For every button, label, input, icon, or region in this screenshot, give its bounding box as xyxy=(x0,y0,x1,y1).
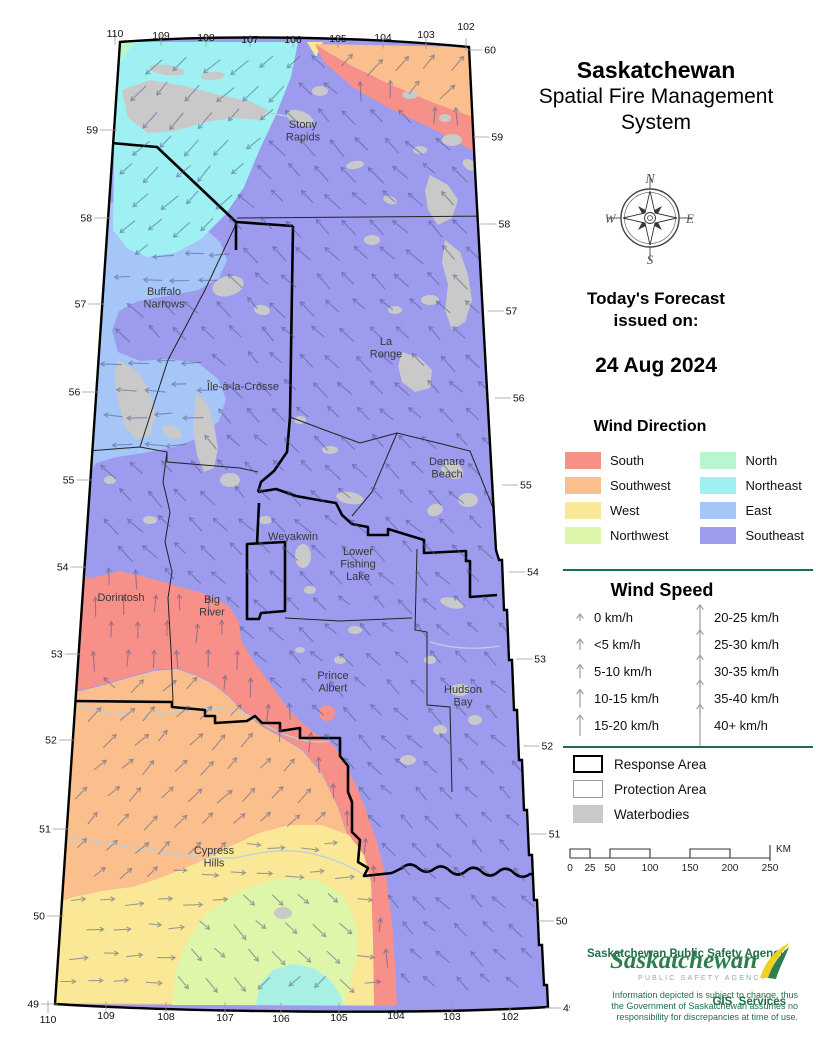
longitude-label: 108 xyxy=(157,1011,175,1023)
logo-subtext: PUBLIC SAFETY AGENCY xyxy=(638,975,767,982)
longitude-label: 103 xyxy=(417,29,435,41)
wind-speed-legend: 0 km/h20-25 km/h<5 km/h25-30 km/h5-10 km… xyxy=(572,604,810,739)
longitude-label: 105 xyxy=(330,1012,348,1024)
longitude-label: 109 xyxy=(97,1010,115,1022)
wind-speed-label: 15-20 km/h xyxy=(594,718,659,733)
longitude-label: 103 xyxy=(443,1011,461,1023)
wind-direction-entry: Northwest xyxy=(565,527,700,544)
wind-direction-label: Northwest xyxy=(610,528,669,543)
wind-speed-row: <5 km/h25-30 km/h xyxy=(572,631,810,658)
map-place-label: PrinceAlbert xyxy=(317,670,348,695)
wind-direction-row: SouthNorth xyxy=(565,452,810,469)
wind-direction-label: Southwest xyxy=(610,478,671,493)
wind-direction-label: South xyxy=(610,453,644,468)
scale-bar-tick-label: 0 xyxy=(567,863,573,874)
wind-speed-heading: Wind Speed xyxy=(552,580,772,601)
wind-speed-label: 40+ km/h xyxy=(714,718,768,733)
compass-e-label: E xyxy=(685,211,694,226)
wind-speed-label: 35-40 km/h xyxy=(714,691,779,706)
wind-direction-entry: Southeast xyxy=(700,527,810,544)
latitude-label: 53 xyxy=(51,649,63,661)
wind-speed-arrow-icon xyxy=(572,685,588,712)
latitude-label: 57 xyxy=(75,299,87,311)
map-place-label: StonyRapids xyxy=(286,119,321,144)
southeast-color-swatch xyxy=(700,527,736,544)
latitude-label: 56 xyxy=(513,393,525,405)
map-place-label: DenareBeach xyxy=(429,456,465,481)
latitude-label: 54 xyxy=(527,567,539,579)
logo-wordmark: Saskatchewan xyxy=(610,947,757,974)
northwest-color-swatch xyxy=(565,527,601,544)
latitude-label: 52 xyxy=(541,741,553,753)
wind-speed-arrow-icon xyxy=(572,604,588,631)
protection-area-label: Protection Area xyxy=(614,782,706,797)
wind-speed-row: 5-10 km/h30-35 km/h xyxy=(572,658,810,685)
wind-speed-row: 15-20 km/h40+ km/h xyxy=(572,712,810,739)
forecast-heading-line1: Today's Forecast xyxy=(536,288,776,310)
compass-w-label: W xyxy=(605,211,617,226)
latitude-label: 49 xyxy=(27,999,39,1011)
scale-bar-tick-label: 25 xyxy=(584,863,596,874)
wind-speed-arrow-icon xyxy=(692,604,708,631)
longitude-label: 106 xyxy=(272,1013,290,1025)
wind-speed-arrow-icon xyxy=(572,658,588,685)
latitude-label: 57 xyxy=(506,306,518,318)
wind-speed-label: <5 km/h xyxy=(594,637,641,652)
latitude-label: 58 xyxy=(499,219,511,231)
wind-speed-entry: 0 km/h xyxy=(572,604,692,631)
wind-direction-label: Northeast xyxy=(745,478,801,493)
wind-direction-label: West xyxy=(610,503,639,518)
latitude-label: 53 xyxy=(534,654,546,666)
scale-bar-tick-label: 200 xyxy=(722,863,739,874)
scale-bar-tick-label: 50 xyxy=(604,863,616,874)
compass-s-label: S xyxy=(647,252,654,266)
wind-speed-label: 20-25 km/h xyxy=(714,610,779,625)
scale-bar: 02550100150200250KM xyxy=(563,840,803,874)
north-color-swatch xyxy=(700,452,736,469)
wind-speed-label: 0 km/h xyxy=(594,610,633,625)
latitude-label: 55 xyxy=(520,480,532,492)
wind-direction-heading: Wind Direction xyxy=(540,418,760,436)
compass-n-label: N xyxy=(644,172,655,187)
map-place-label: Île-à-la-Crosse xyxy=(206,380,279,393)
response-area-label: Response Area xyxy=(614,757,706,772)
longitude-label: 109 xyxy=(152,30,170,42)
wind-direction-row: NorthwestSoutheast xyxy=(565,527,810,544)
longitude-label: 106 xyxy=(284,34,302,46)
area-legend: Response Area Protection Area Waterbodie… xyxy=(573,755,706,830)
longitude-label: 105 xyxy=(329,33,347,45)
disclaimer-line2: the Government of Saskatchewan assumes n… xyxy=(556,1001,798,1012)
wind-speed-entry: 25-30 km/h xyxy=(692,631,810,658)
wind-speed-entry: 15-20 km/h xyxy=(572,712,692,739)
disclaimer-line3: responsibility for discrepancies at time… xyxy=(556,1012,798,1023)
response-area-swatch xyxy=(573,755,603,773)
wind-direction-row: SouthwestNortheast xyxy=(565,477,810,494)
wind-direction-label: North xyxy=(745,453,777,468)
southwest-color-swatch xyxy=(565,477,601,494)
east-color-swatch xyxy=(700,502,736,519)
wind-direction-entry: North xyxy=(700,452,810,469)
longitude-label: 107 xyxy=(241,34,259,46)
scale-bar-tick-label: 250 xyxy=(762,863,779,874)
waterbodies-swatch xyxy=(573,805,603,823)
wind-direction-entry: South xyxy=(565,452,700,469)
map-place-label: Dorintosh xyxy=(97,592,144,604)
separator-line xyxy=(563,569,813,571)
map-place-label: BuffaloNarrows xyxy=(144,286,185,311)
wind-direction-entry: East xyxy=(700,502,810,519)
wind-speed-arrow-icon xyxy=(572,631,588,658)
latitude-label: 56 xyxy=(69,387,81,399)
latitude-label: 51 xyxy=(549,829,561,841)
wind-speed-arrow-icon xyxy=(572,712,588,739)
wind-direction-row: WestEast xyxy=(565,502,810,519)
wind-speed-label: 25-30 km/h xyxy=(714,637,779,652)
wind-speed-label: 10-15 km/h xyxy=(594,691,659,706)
west-color-swatch xyxy=(565,502,601,519)
wind-direction-label: East xyxy=(745,503,771,518)
wind-speed-entry: <5 km/h xyxy=(572,631,692,658)
latitude-label: 51 xyxy=(39,824,51,836)
longitude-label: 107 xyxy=(216,1012,234,1024)
longitude-label: 102 xyxy=(501,1011,519,1023)
wind-speed-entry: 5-10 km/h xyxy=(572,658,692,685)
saskatchewan-fire-weather-map: 5958575655545352515049605958575655545352… xyxy=(0,0,570,1056)
latitude-label: 55 xyxy=(63,475,75,487)
forecast-date: 24 Aug 2024 xyxy=(536,354,776,378)
longitude-label: 108 xyxy=(197,32,215,44)
south-color-swatch xyxy=(565,452,601,469)
wind-direction-regions xyxy=(52,37,548,1011)
map-place-label: Weyakwin xyxy=(268,531,318,543)
longitude-label: 110 xyxy=(107,28,124,40)
wind-direction-legend: SouthNorthSouthwestNortheastWestEastNort… xyxy=(565,452,810,552)
compass-rose-icon: N E S W xyxy=(602,170,698,266)
wind-speed-row: 0 km/h20-25 km/h xyxy=(572,604,810,631)
scale-bar-tick-label: 100 xyxy=(642,863,659,874)
scale-bar-tick-label: 150 xyxy=(682,863,699,874)
longitude-label: 104 xyxy=(374,32,392,44)
latitude-label: 59 xyxy=(491,132,503,144)
wind-speed-arrow-icon xyxy=(692,631,708,658)
wind-speed-entry: 20-25 km/h xyxy=(692,604,810,631)
wind-direction-entry: Northeast xyxy=(700,477,810,494)
wind-direction-label: Southeast xyxy=(745,528,804,543)
protection-area-swatch xyxy=(573,780,603,798)
longitude-label: 102 xyxy=(457,21,475,33)
northeast-color-swatch xyxy=(700,477,736,494)
wind-speed-label: 30-35 km/h xyxy=(714,664,779,679)
forecast-heading-line2: issued on: xyxy=(536,310,776,332)
disclaimer-text: Information depicted is subject to chang… xyxy=(556,990,798,1022)
page-title: Saskatchewan Spatial Fire Management Sys… xyxy=(516,56,796,136)
longitude-label: 104 xyxy=(387,1010,405,1022)
wind-speed-entry: 30-35 km/h xyxy=(692,658,810,685)
separator-line xyxy=(563,746,813,748)
protection-area-legend-row: Protection Area xyxy=(573,780,706,798)
title-line2: Spatial Fire Management xyxy=(516,84,796,110)
saskatchewan-psa-logo: Saskatchewan PUBLIC SAFETY AGENCY xyxy=(608,942,798,988)
waterbodies-label: Waterbodies xyxy=(614,807,689,822)
wind-speed-row: 10-15 km/h35-40 km/h xyxy=(572,685,810,712)
wind-direction-entry: Southwest xyxy=(565,477,700,494)
latitude-label: 50 xyxy=(33,911,45,923)
title-line3: System xyxy=(516,110,796,136)
wind-speed-entry: 35-40 km/h xyxy=(692,685,810,712)
wind-speed-label: 5-10 km/h xyxy=(594,664,652,679)
wind-speed-arrow-icon xyxy=(692,712,708,739)
longitude-label: 110 xyxy=(40,1014,57,1026)
latitude-label: 52 xyxy=(45,735,57,747)
wind-direction-entry: West xyxy=(565,502,700,519)
latitude-label: 59 xyxy=(86,125,98,137)
scale-bar-unit-label: KM xyxy=(776,844,791,855)
wind-speed-entry: 10-15 km/h xyxy=(572,685,692,712)
latitude-label: 54 xyxy=(57,562,69,574)
waterbodies-legend-row: Waterbodies xyxy=(573,805,706,823)
title-line1: Saskatchewan xyxy=(516,56,796,84)
disclaimer-line1: Information depicted is subject to chang… xyxy=(556,990,798,1001)
latitude-label: 58 xyxy=(80,213,92,225)
response-area-legend-row: Response Area xyxy=(573,755,706,773)
wind-speed-entry: 40+ km/h xyxy=(692,712,810,739)
forecast-block: Today's Forecast issued on: 24 Aug 2024 xyxy=(536,288,776,378)
latitude-label: 60 xyxy=(484,45,496,57)
